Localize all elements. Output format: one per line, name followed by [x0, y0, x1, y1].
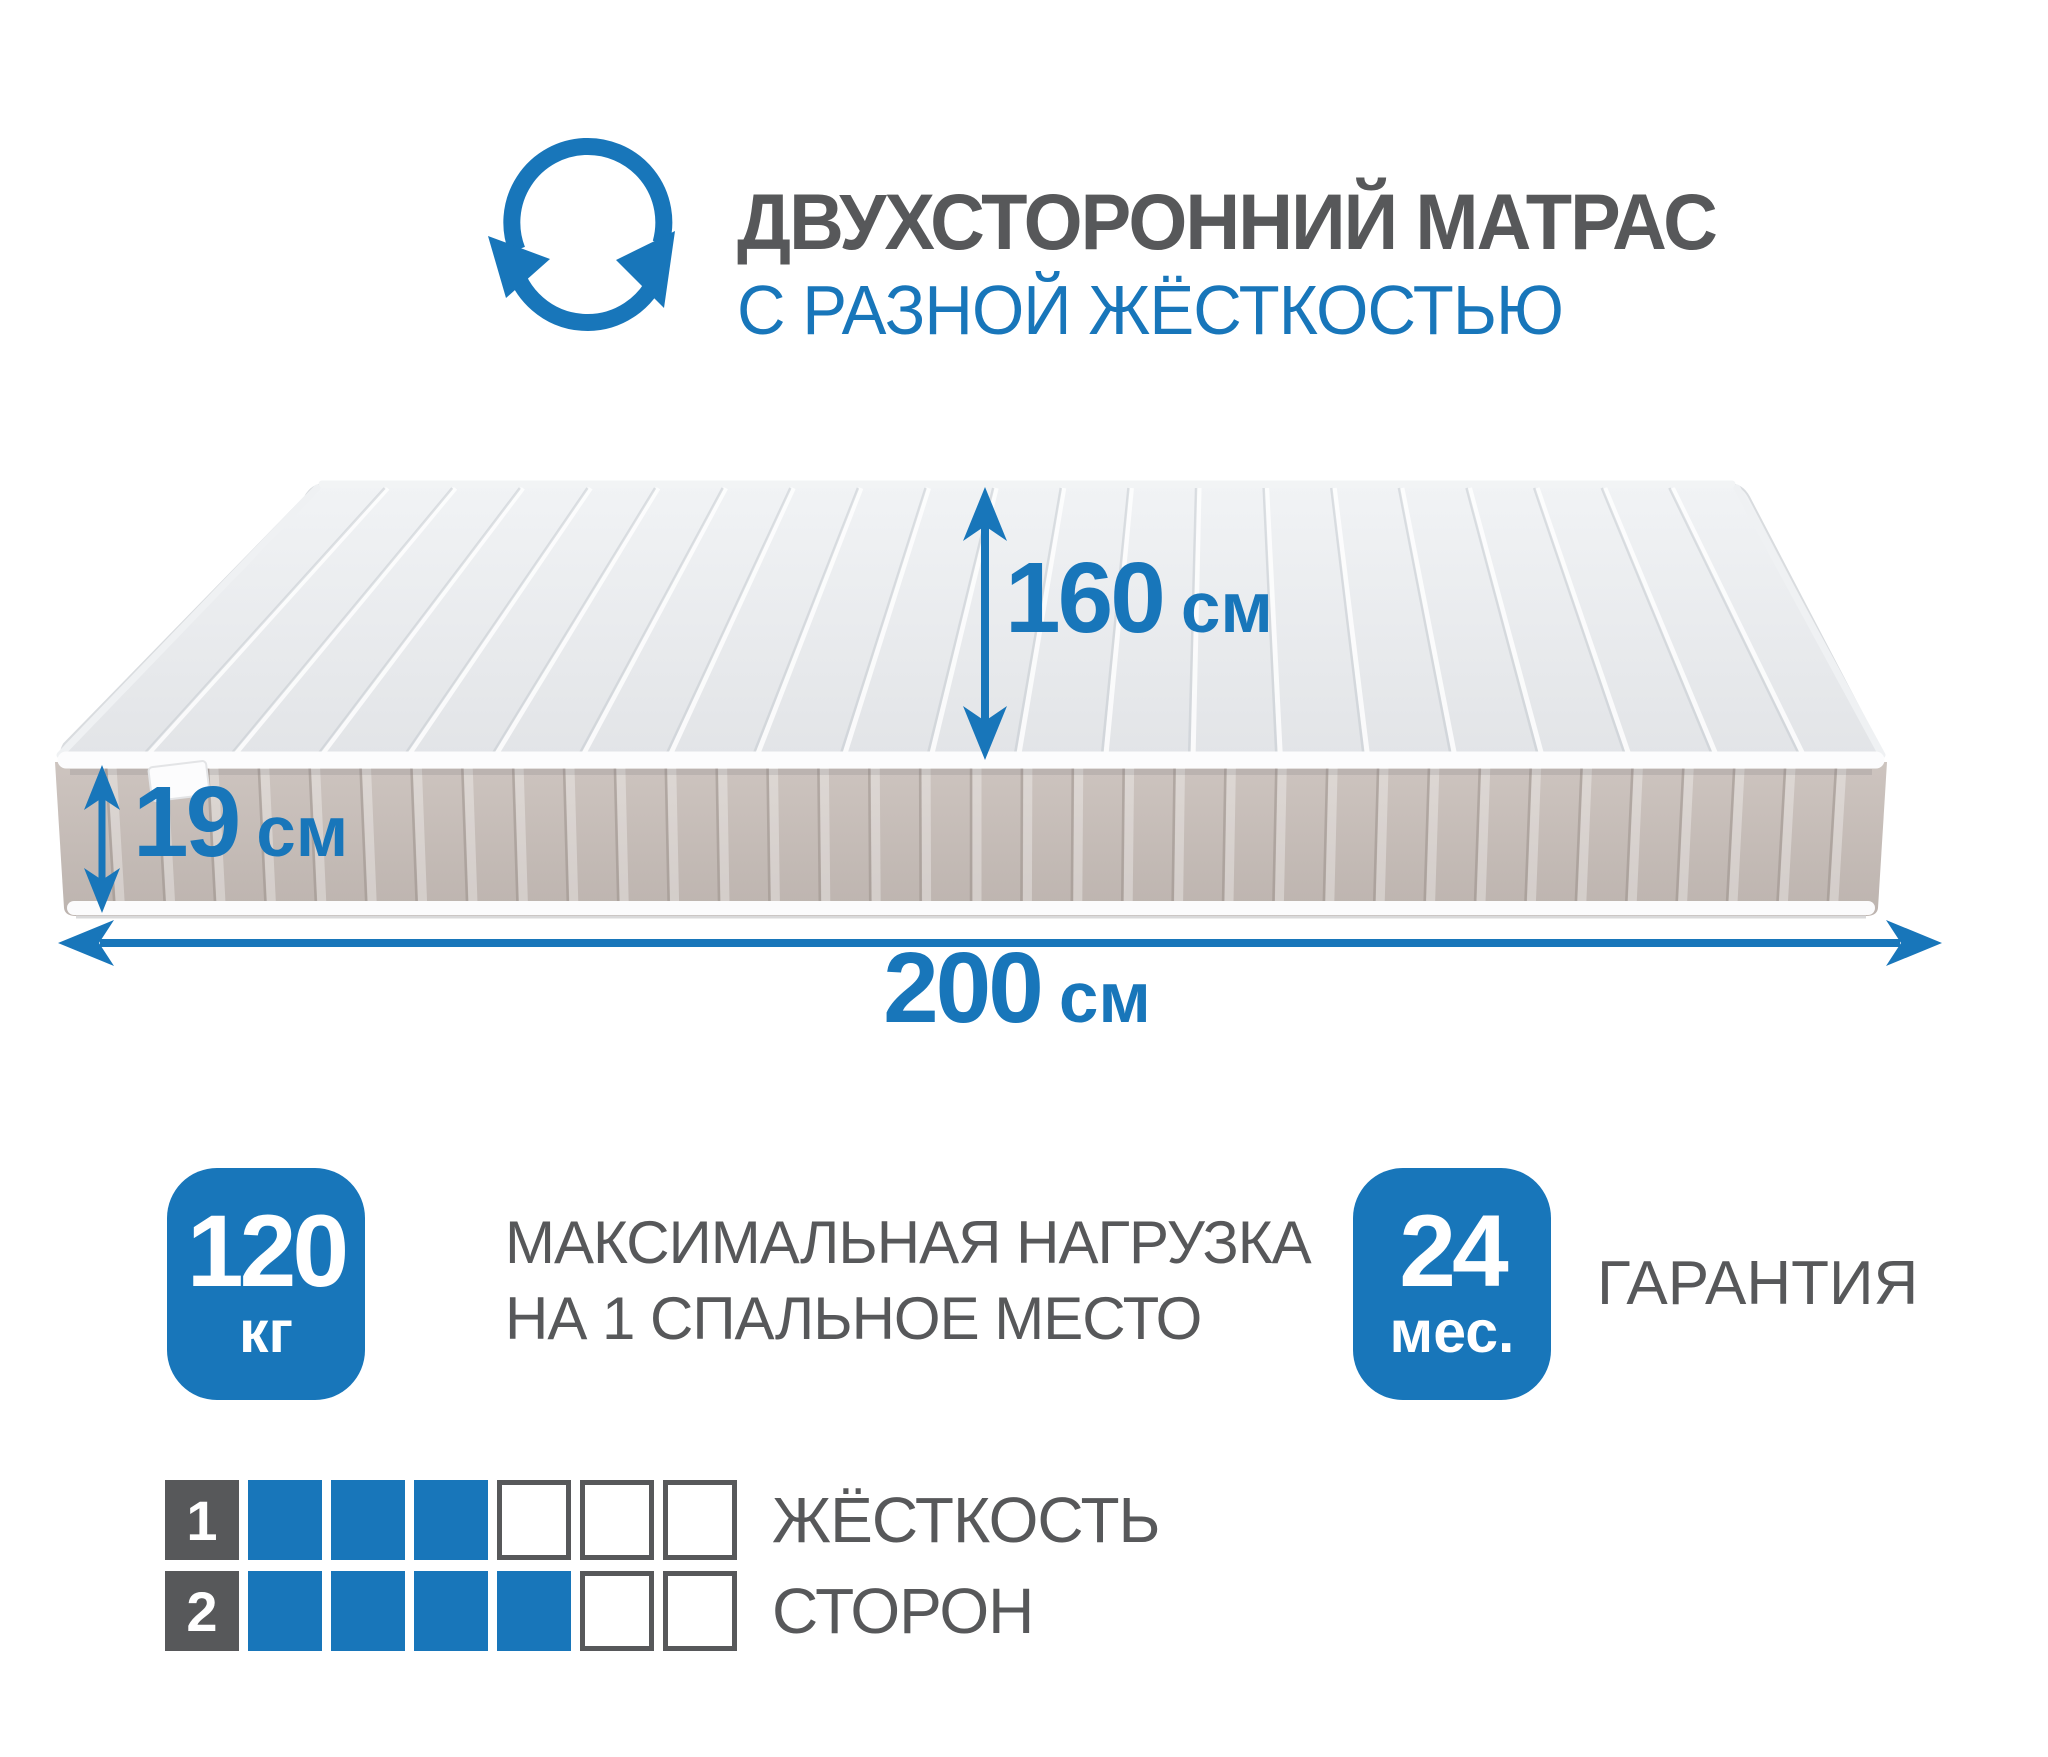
firmness-cell: [414, 1571, 488, 1651]
firmness-cell: [497, 1480, 571, 1560]
firmness-cell: [414, 1480, 488, 1560]
page-title-line1: ДВУХСТОРОННИЙ МАТРАС: [737, 176, 1716, 268]
warranty-unit: мес.: [1390, 1299, 1515, 1365]
max-load-value: 120: [187, 1203, 345, 1300]
firmness-cell: [580, 1480, 654, 1560]
firmness-label-line2: СТОРОН: [772, 1574, 1033, 1648]
height-unit: см: [256, 797, 348, 868]
length-dimension-label: 200 см: [800, 938, 1234, 1038]
max-load-badge: 120 кг: [167, 1168, 365, 1400]
max-load-label-line2: НА 1 СПАЛЬНОЕ МЕСТО: [505, 1281, 1311, 1357]
warranty-badge: 24 мес.: [1353, 1168, 1551, 1400]
firmness-cell: [248, 1571, 322, 1651]
height-value: 19: [133, 772, 238, 872]
firmness-cell: [663, 1571, 737, 1651]
firmness-row: 2: [165, 1571, 737, 1651]
warranty-label: ГАРАНТИЯ: [1597, 1248, 1918, 1319]
firmness-side-number: 1: [165, 1480, 239, 1560]
infographic-canvas: ДВУХСТОРОННИЙ МАТРАС С РАЗНОЙ ЖЁСТКОСТЬЮ…: [0, 0, 2048, 1757]
width-value: 160: [1005, 548, 1163, 648]
length-unit: см: [1059, 963, 1151, 1034]
width-dimension-label: 160 см: [1005, 548, 1273, 648]
page-title-line2: С РАЗНОЙ ЖЁСТКОСТЬЮ: [737, 270, 1563, 350]
firmness-cell: [580, 1571, 654, 1651]
height-dimension-label: 19 см: [133, 772, 348, 872]
firmness-cell: [248, 1480, 322, 1560]
rotate-arrows-icon: [488, 146, 675, 322]
length-value: 200: [883, 938, 1041, 1038]
max-load-unit: кг: [239, 1299, 293, 1365]
firmness-label-line1: ЖЁСТКОСТЬ: [772, 1483, 1160, 1557]
firmness-cell: [331, 1480, 405, 1560]
warranty-value: 24: [1399, 1203, 1504, 1300]
firmness-side-number: 2: [165, 1571, 239, 1651]
max-load-label-line1: МАКСИМАЛЬНАЯ НАГРУЗКА: [505, 1205, 1311, 1281]
firmness-cell: [497, 1571, 571, 1651]
firmness-cell: [663, 1480, 737, 1560]
firmness-row: 1: [165, 1480, 737, 1560]
firmness-cell: [331, 1571, 405, 1651]
max-load-label: МАКСИМАЛЬНАЯ НАГРУЗКА НА 1 СПАЛЬНОЕ МЕСТ…: [505, 1205, 1311, 1357]
firmness-scale: 12: [165, 1480, 737, 1651]
width-unit: см: [1181, 573, 1273, 644]
